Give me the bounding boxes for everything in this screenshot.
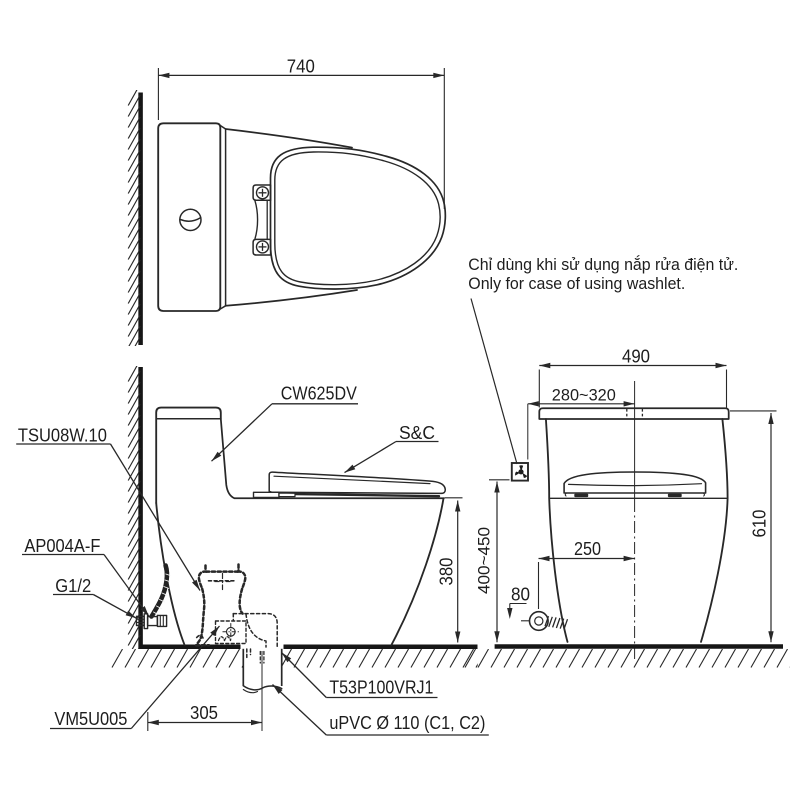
svg-text:G1/2: G1/2 xyxy=(55,575,91,596)
svg-text:610: 610 xyxy=(750,510,770,538)
svg-text:T53P100VRJ1: T53P100VRJ1 xyxy=(329,677,433,698)
svg-text:490: 490 xyxy=(622,347,650,367)
svg-text:305: 305 xyxy=(190,703,218,723)
svg-text:280~320: 280~320 xyxy=(552,386,616,405)
svg-text:S&C: S&C xyxy=(399,422,435,443)
svg-text:AP004A-F: AP004A-F xyxy=(24,535,100,556)
svg-text:380: 380 xyxy=(437,558,457,586)
svg-text:Chỉ dùng khi sử dụng nắp rửa đ: Chỉ dùng khi sử dụng nắp rửa điện tử. xyxy=(468,255,738,274)
svg-text:740: 740 xyxy=(287,56,315,76)
svg-text:80: 80 xyxy=(511,585,530,605)
svg-text:250: 250 xyxy=(574,539,601,559)
svg-text:CW625DV: CW625DV xyxy=(281,382,358,403)
svg-text:400~450: 400~450 xyxy=(475,527,494,594)
svg-text:Only for case of using washlet: Only for case of using washlet. xyxy=(468,274,685,293)
svg-text:TSU08W.10: TSU08W.10 xyxy=(18,425,107,446)
svg-text:VM5U005: VM5U005 xyxy=(54,708,127,729)
svg-text:uPVC Ø 110 (C1, C2): uPVC Ø 110 (C1, C2) xyxy=(329,712,485,733)
